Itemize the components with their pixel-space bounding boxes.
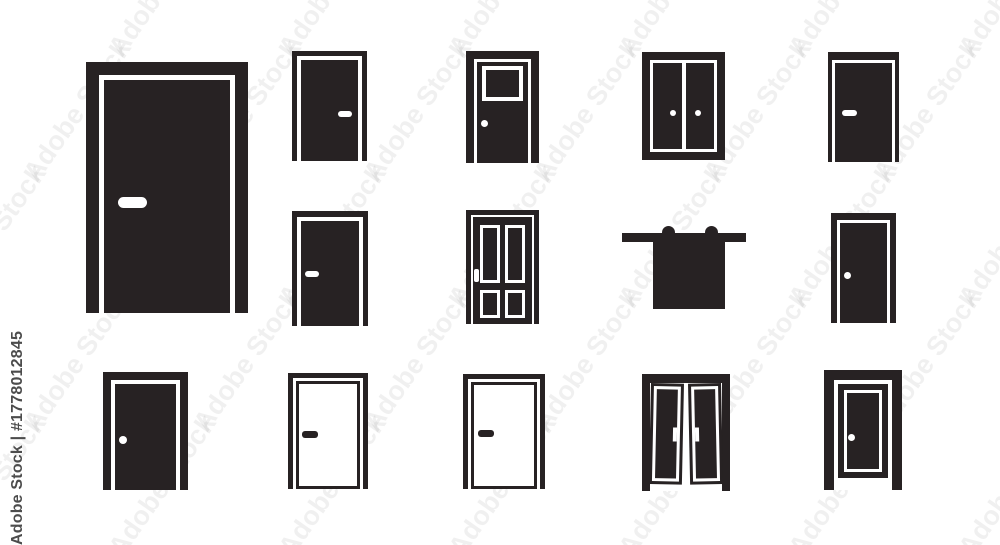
door-rail-icon <box>622 233 746 242</box>
four-panel-door-icon <box>466 210 539 324</box>
watermark-tile: Adobe Stock <box>952 159 1000 312</box>
door-panel-icon <box>505 290 525 318</box>
door-handle-icon <box>695 428 699 442</box>
watermark-tile: Adobe Stock <box>527 34 647 187</box>
door-handle-icon <box>118 197 147 208</box>
door-with-knob-icon <box>103 372 188 490</box>
door-knob-icon <box>670 110 676 116</box>
door-handle-icon <box>842 110 857 116</box>
door-knob-icon <box>119 436 127 444</box>
door-knob-icon <box>481 120 488 127</box>
folding-door-leaf-icon <box>649 383 684 485</box>
door-handle-icon <box>673 428 677 442</box>
white-door-outline-icon <box>288 373 368 489</box>
door-knob-icon <box>844 272 851 279</box>
single-door-left-handle-icon <box>292 211 368 326</box>
door-handle-icon <box>338 111 352 117</box>
door-window-icon <box>482 66 523 101</box>
watermark-tile: Adobe Stock <box>357 34 477 187</box>
stock-credit-watermark: Adobe Stock | #1778012845 <box>9 307 31 545</box>
double-framed-door-icon <box>824 370 902 490</box>
door-handle-icon <box>302 431 318 438</box>
watermark-tile: Adobe Stock <box>0 0 53 62</box>
door-panel-icon <box>480 290 500 318</box>
door-knob-icon <box>695 110 701 116</box>
sliding-barn-door-icon <box>622 224 746 309</box>
door-panel-icon <box>480 225 500 283</box>
door-handle-icon <box>474 269 479 282</box>
door-with-knob-icon <box>831 213 896 323</box>
door-handle-icon <box>305 271 319 277</box>
door-with-window-icon <box>466 51 539 163</box>
watermark-tile: Adobe Stock <box>952 0 1000 62</box>
watermark-tile: Adobe Stock <box>357 284 477 437</box>
stock-image-canvas: Adobe StockAdobe StockAdobe StockAdobe S… <box>0 0 1000 545</box>
folding-door-leaf-icon <box>688 383 723 485</box>
folding-double-door-icon <box>642 374 730 491</box>
white-door-outline-icon <box>463 374 545 489</box>
door-handle-icon <box>478 430 494 437</box>
watermark-tile: Adobe Stock <box>0 159 53 312</box>
large-single-door-icon <box>86 62 248 313</box>
inner-door-frame-icon <box>838 384 888 478</box>
single-door-right-handle-icon <box>292 51 367 161</box>
door-panel-icon <box>653 242 725 309</box>
watermark-tile: Adobe Stock <box>952 409 1000 545</box>
watermark-tile: Adobe Stock <box>102 0 222 62</box>
double-door-icon <box>642 52 725 160</box>
single-door-left-handle-icon <box>828 52 899 162</box>
door-panel-icon <box>505 225 525 283</box>
door-knob-icon <box>848 434 855 441</box>
